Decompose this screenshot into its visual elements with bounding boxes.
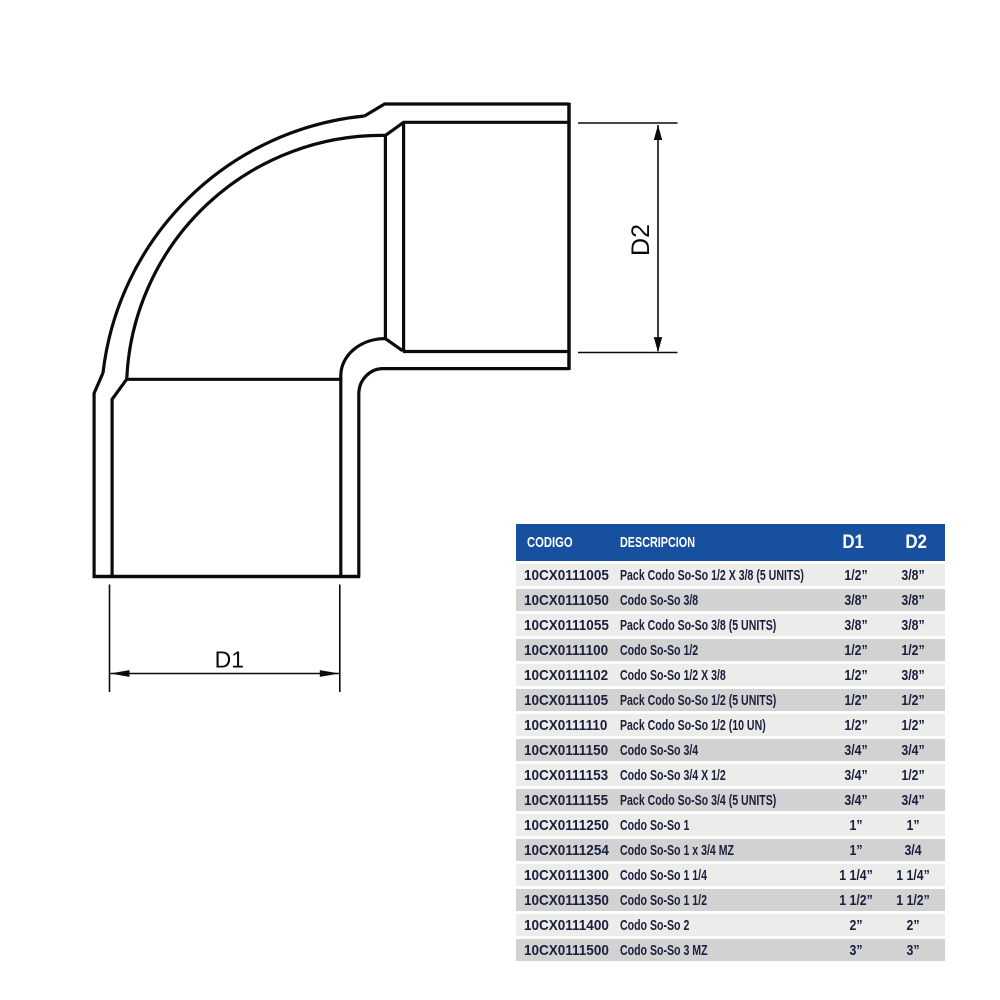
svg-text:D2: D2 bbox=[627, 224, 655, 256]
svg-text:D1: D1 bbox=[215, 647, 244, 673]
